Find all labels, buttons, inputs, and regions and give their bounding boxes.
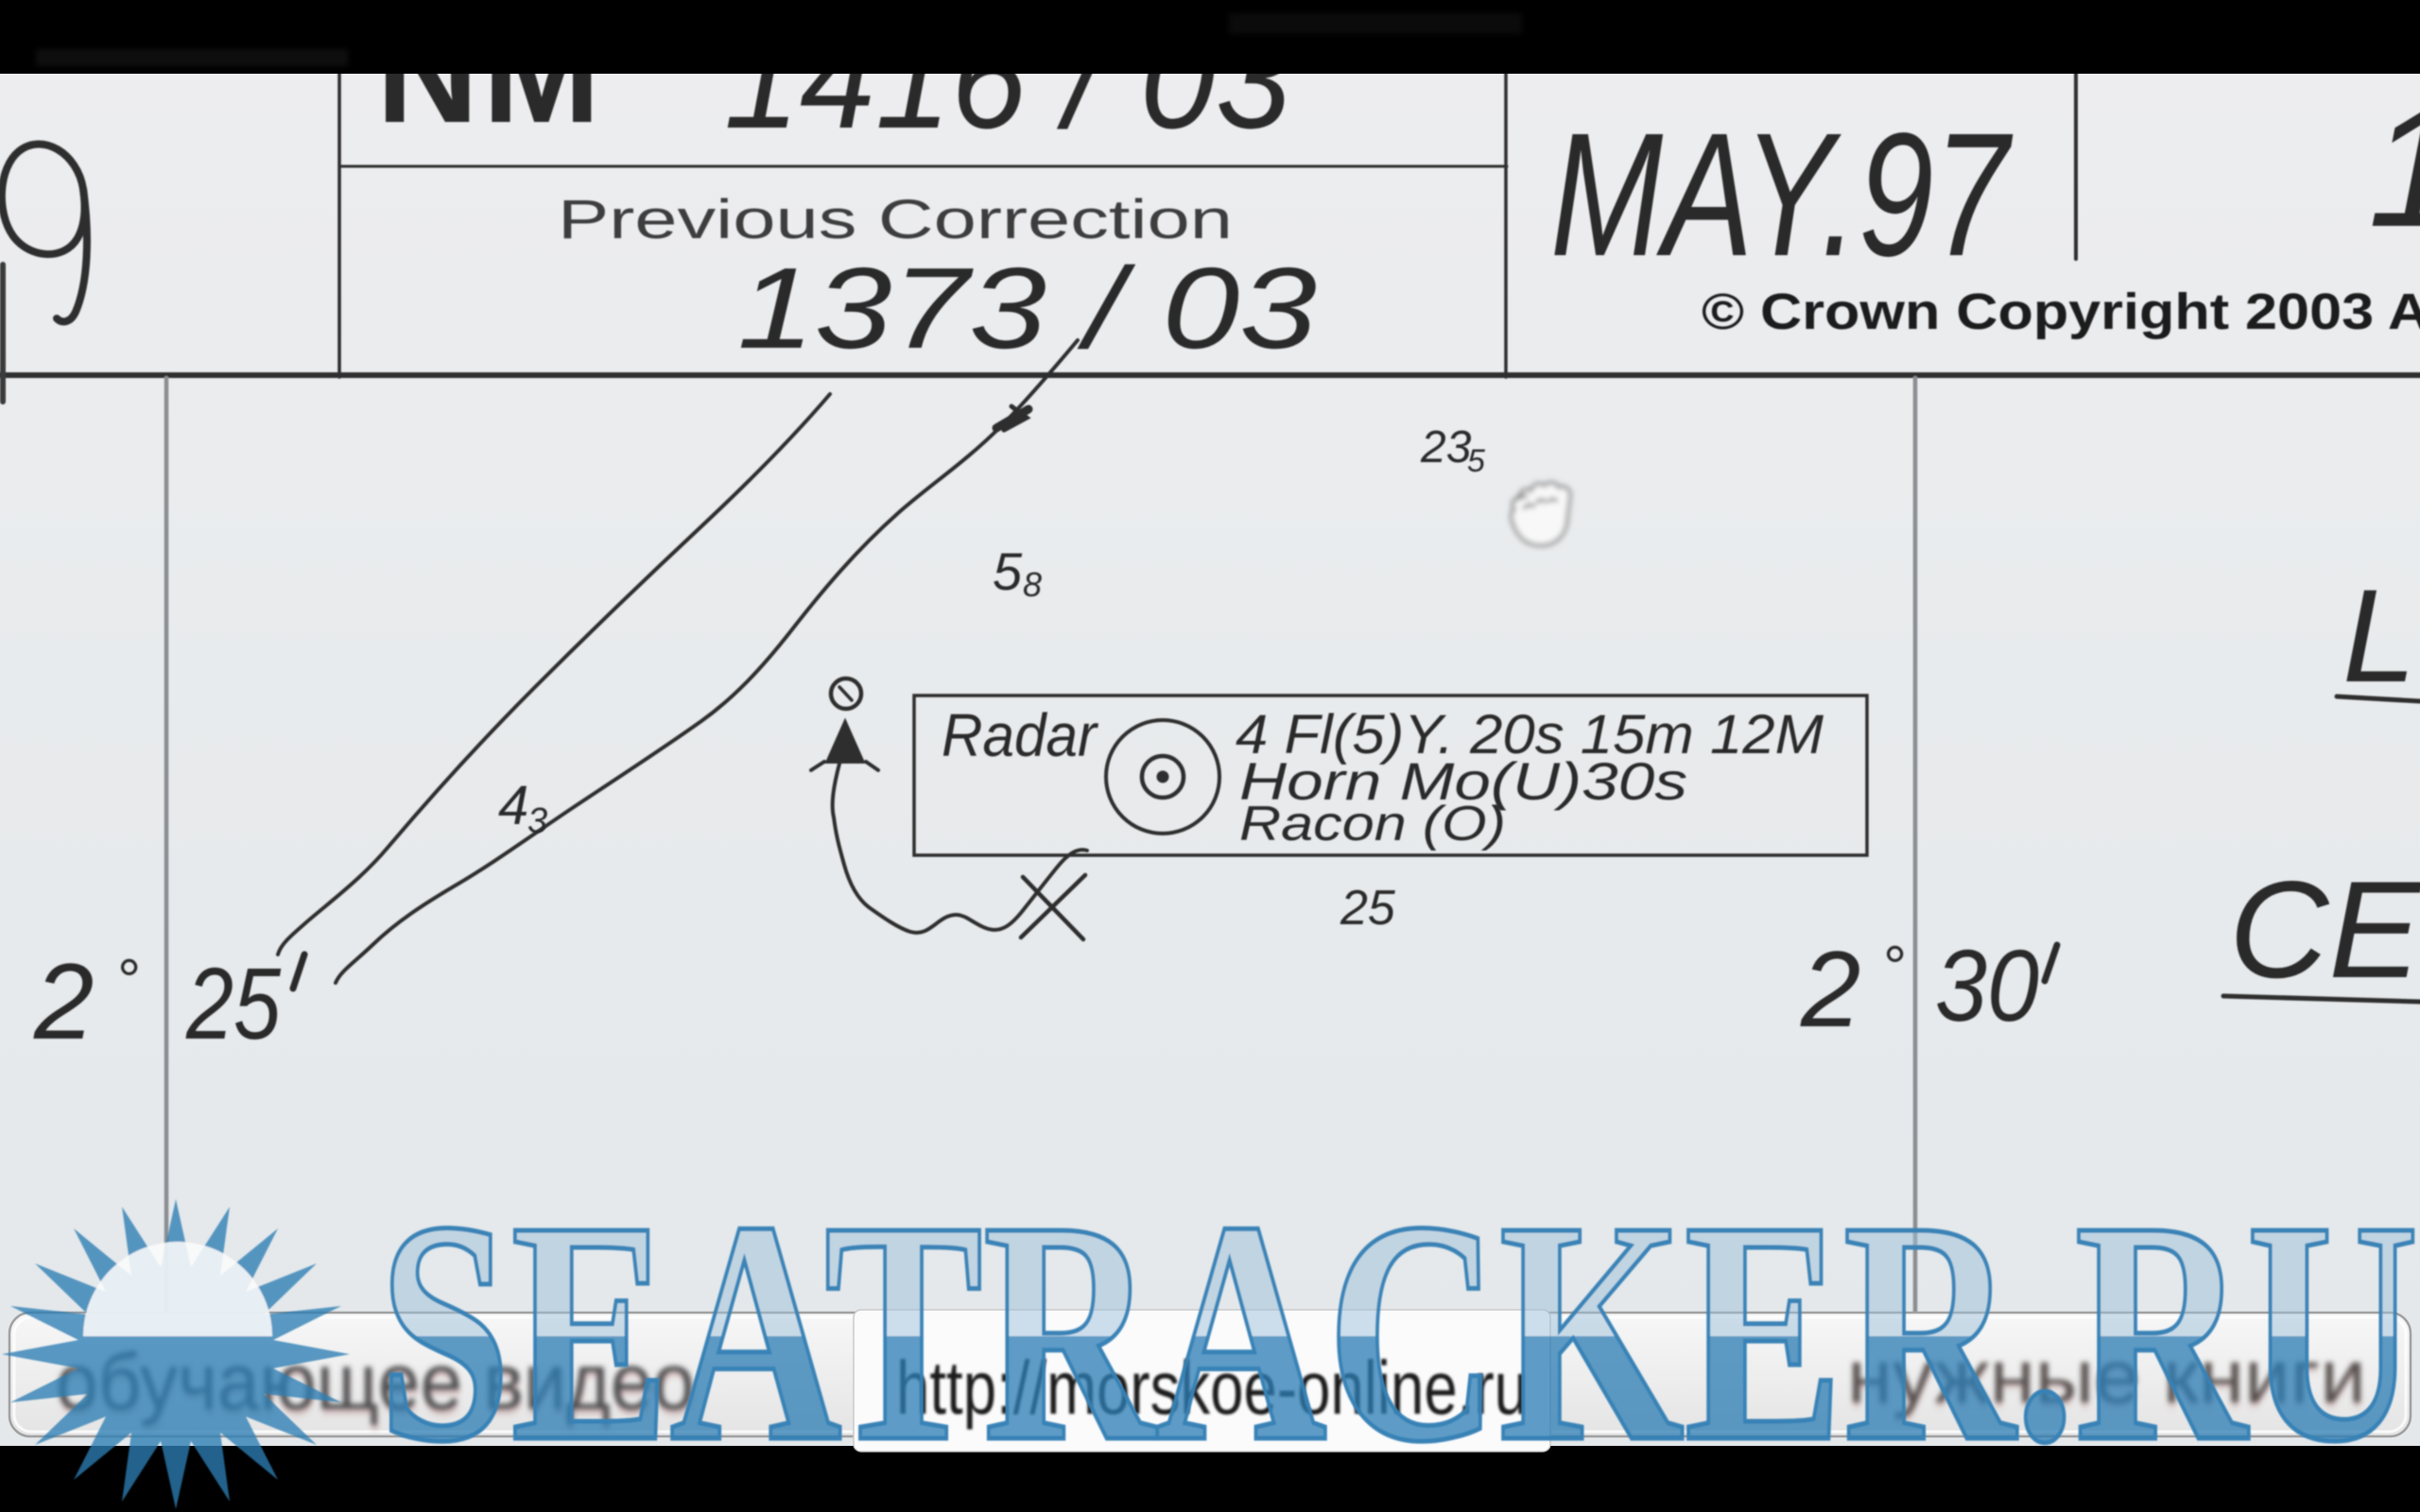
- svg-text:Previous Correction: Previous Correction: [558, 189, 1233, 250]
- svg-text:3: 3: [527, 801, 547, 841]
- svg-text:23: 23: [1420, 422, 1472, 472]
- svg-text:L: L: [2342, 561, 2416, 710]
- svg-text:8: 8: [1023, 565, 1042, 604]
- svg-text:25: 25: [1340, 881, 1396, 936]
- svg-text:5: 5: [993, 541, 1023, 601]
- svg-text:25: 25: [185, 946, 282, 1060]
- svg-text:SEATRACKER.RU: SEATRACKER.RU: [378, 1156, 2418, 1507]
- svg-text:Radar: Radar: [942, 701, 1099, 769]
- svg-text:MAY.97: MAY.97: [1550, 97, 2014, 293]
- svg-text:30: 30: [1935, 928, 2039, 1042]
- svg-text:°: °: [1881, 935, 1905, 1000]
- svg-text:5: 5: [1467, 443, 1485, 479]
- svg-text:1373 / 03: 1373 / 03: [737, 244, 1317, 372]
- svg-text:18: 18: [2368, 73, 2420, 263]
- svg-text:2: 2: [1800, 930, 1860, 1050]
- svg-text:4: 4: [498, 775, 528, 836]
- svg-text:© Crown Copyright 2003 A: © Crown Copyright 2003 A: [1702, 283, 2420, 340]
- svg-text:CE: CE: [2229, 852, 2420, 1006]
- svg-text:°: °: [115, 948, 139, 1013]
- svg-text:Racon (O): Racon (O): [1239, 797, 1506, 851]
- svg-text:2: 2: [33, 942, 94, 1062]
